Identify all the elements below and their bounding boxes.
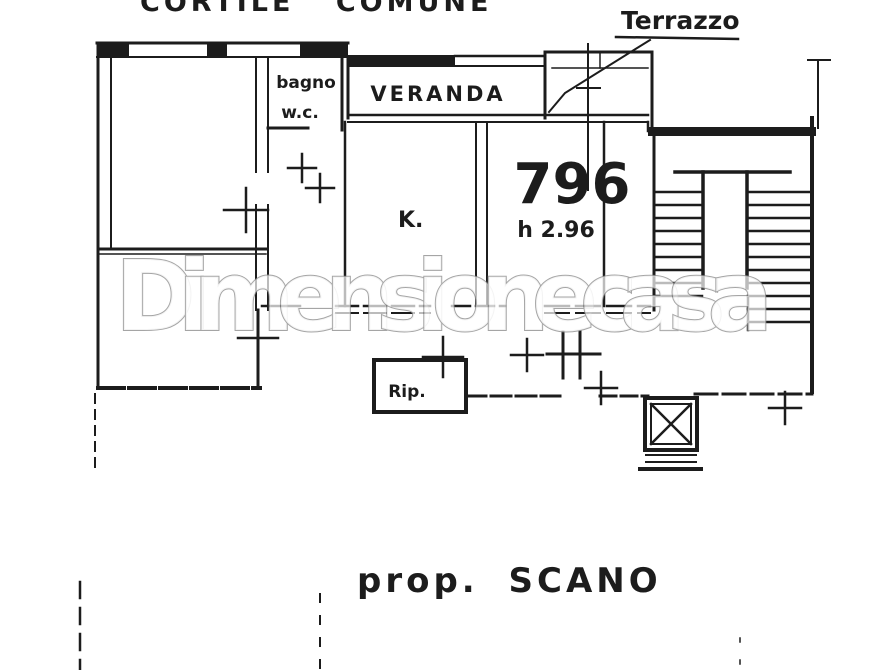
terrace-label: Terrazzo (621, 6, 740, 35)
cross-mark (769, 392, 801, 424)
cross-mark (288, 154, 316, 182)
veranda: VERANDA (348, 55, 648, 122)
elevator (640, 398, 701, 469)
owner-caption: prop. SCANO (357, 561, 662, 601)
cross-mark (306, 174, 334, 202)
bathroom: bagno w.c. (268, 57, 342, 130)
kitchen-label: K. (398, 208, 423, 233)
bathroom-label-1: bagno (276, 73, 336, 93)
floor-plan-drawing: CORTILE COMUNE Terrazzo ba (0, 0, 893, 670)
veranda-label: VERANDA (370, 82, 505, 106)
room-number: 796 (514, 152, 631, 217)
terrace-underline (616, 37, 738, 39)
cross-mark (585, 372, 617, 404)
agency-watermark: Dimensionecasa (115, 240, 775, 353)
floor-plan-scan: CORTILE COMUNE Terrazzo ba (0, 0, 893, 670)
storage-room: Rip. (374, 360, 466, 412)
storage-label: Rip. (388, 382, 426, 402)
cross-mark (224, 188, 268, 232)
courtyard-label: CORTILE COMUNE (140, 0, 492, 18)
terrace-annotation: Terrazzo (549, 6, 740, 112)
bathroom-label-2: w.c. (281, 103, 319, 123)
